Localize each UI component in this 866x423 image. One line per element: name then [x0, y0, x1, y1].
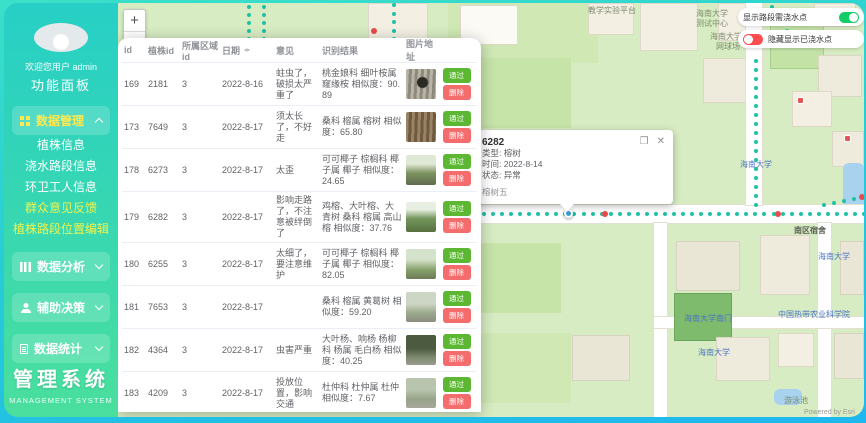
sidebar-item-link[interactable]: 环卫工人信息: [25, 177, 97, 198]
sidebar-item-link[interactable]: 浇水路段信息: [25, 156, 97, 177]
sidebar-item-active[interactable]: 群众意见反馈: [25, 198, 97, 219]
watering-point: [645, 212, 649, 216]
plant-photo-thumbnail[interactable]: [406, 378, 436, 408]
cell-plant-id: 7649: [146, 122, 180, 133]
map-label: 海南大学: [740, 159, 772, 170]
cell-id: 183: [122, 388, 146, 399]
table-row: 180 6255 3 2022-8-17 太细了，要注意维护 可可椰子 棕榈科 …: [122, 243, 477, 286]
cell-plant-id: 6255: [146, 259, 180, 270]
cell-plant-id: 6273: [146, 165, 180, 176]
toggle-switch-on[interactable]: [839, 12, 859, 23]
watering-point: [754, 131, 758, 135]
table-header-row: id植株id所属区域id日期意见识别结果图片地址: [122, 38, 477, 63]
delete-button[interactable]: 删除: [443, 265, 471, 280]
cell-plant-id: 4364: [146, 345, 180, 356]
watering-point: [262, 21, 266, 25]
delete-button[interactable]: 删除: [443, 351, 471, 366]
watering-point: [754, 149, 758, 153]
watering-point: [832, 201, 836, 205]
watering-point: [247, 5, 251, 9]
watering-point: [247, 29, 251, 33]
column-header: 所属区域id: [180, 39, 220, 62]
alert-point[interactable]: [775, 211, 781, 217]
delete-button[interactable]: 删除: [443, 85, 471, 100]
cell-opinion: 太歪: [274, 165, 320, 176]
watering-point: [262, 13, 266, 17]
map-label: 游泳池: [784, 395, 808, 406]
map-label: 网球场: [716, 41, 740, 52]
cell-plant-id: 4209: [146, 388, 180, 399]
cell-result: 桃金娘科 细叶桉属 窿缘桉 相似度：90.89: [320, 68, 404, 101]
cell-date: 2022-8-16: [220, 79, 274, 90]
watering-point: [392, 29, 396, 33]
watering-point: [609, 212, 613, 216]
menu-group-label: 辅助决策: [37, 299, 85, 316]
toggle-row-show-points: 显示路段需浇水点: [738, 8, 864, 26]
menu-group-label: 数据管理: [36, 112, 84, 129]
layer-toggle-panel: 显示路段需浇水点 隐藏显示已浇水点: [738, 8, 864, 48]
chevron-up-icon: [95, 118, 103, 126]
popup-time: 时间: 2022-8-14: [482, 159, 663, 170]
watering-point: [754, 185, 758, 189]
cell-area-id: 3: [180, 212, 220, 223]
approve-button[interactable]: 通过: [443, 201, 471, 216]
approve-button[interactable]: 通过: [443, 377, 471, 392]
cell-date: 2022-8-17: [220, 259, 274, 270]
column-header: 意见: [274, 44, 320, 57]
poi-marker-red[interactable]: [844, 135, 851, 142]
menu-group-label: 数据统计: [34, 340, 82, 357]
watering-point: [808, 212, 812, 216]
chevron-down-icon: [95, 261, 103, 269]
bar-chart-icon: [20, 262, 31, 272]
watering-point: [392, 12, 396, 16]
document-icon: [20, 344, 28, 354]
watering-point: [799, 212, 803, 216]
delete-button[interactable]: 删除: [443, 171, 471, 186]
cell-id: 182: [122, 345, 146, 356]
watering-point: [247, 21, 251, 25]
map-label: 南区宿舍: [794, 225, 826, 236]
watering-point: [591, 212, 595, 216]
cell-result: 桑科 榕属 黄葛树 相似度：59.20: [320, 296, 404, 318]
watering-point: [842, 199, 846, 203]
watering-point: [663, 212, 667, 216]
chevron-down-icon: [95, 343, 103, 351]
watering-point: [862, 212, 864, 216]
cell-date: 2022-8-17: [220, 345, 274, 356]
watering-point: [853, 212, 857, 216]
sidebar-item-link[interactable]: 植株信息: [37, 135, 85, 156]
maximize-icon[interactable]: ❐: [640, 136, 649, 147]
delete-button[interactable]: 删除: [443, 128, 471, 143]
approve-button[interactable]: 通过: [443, 248, 471, 263]
watering-point: [754, 68, 758, 72]
watering-point: [636, 212, 640, 216]
watering-point: [754, 104, 758, 108]
column-header: 植株id: [146, 44, 180, 57]
watering-point: [392, 20, 396, 24]
popup-type: 类型: 榕树: [482, 148, 663, 159]
cell-area-id: 3: [180, 122, 220, 133]
cell-date: 2022-8-17: [220, 388, 274, 399]
watering-point: [672, 212, 676, 216]
watering-point: [781, 212, 785, 216]
watering-point: [582, 212, 586, 216]
watering-point: [844, 212, 848, 216]
watering-point: [482, 212, 486, 216]
plant-photo-thumbnail[interactable]: [406, 335, 436, 365]
watering-point: [817, 212, 821, 216]
map-label: 中国热带农业科学院: [778, 309, 850, 320]
cell-area-id: 3: [180, 345, 220, 356]
menu-group[interactable]: 辅助决策: [12, 293, 110, 322]
cell-area-id: 3: [180, 388, 220, 399]
toggle-label: 显示路段需浇水点: [743, 12, 807, 23]
table-body: 169 2181 3 2022-8-16 蛀虫了，破损太严重了 桃金娘科 细叶桉…: [122, 63, 477, 412]
watering-point: [754, 95, 758, 99]
plant-photo-thumbnail[interactable]: [406, 155, 436, 185]
cell-opinion: 太细了，要注意维护: [274, 248, 320, 281]
cell-plant-id: 6282: [146, 212, 180, 223]
cell-result: 杜仲科 杜仲属 杜仲 相似度：7.67: [320, 382, 404, 404]
plant-photo-thumbnail[interactable]: [406, 292, 436, 322]
brand: 管理系统 MANAGEMENT SYSTEM: [9, 363, 113, 405]
brand-subtitle: MANAGEMENT SYSTEM: [9, 396, 113, 405]
cell-result: 鸡榕、大叶榕、大青树 桑科 榕属 高山榕 相似度：37.76: [320, 201, 404, 234]
poi-marker-red[interactable]: [797, 97, 804, 104]
watering-point: [826, 212, 830, 216]
cell-date: 2022-8-17: [220, 212, 274, 223]
watering-point: [852, 197, 856, 201]
cell-area-id: 3: [180, 302, 220, 313]
sidebar: 欢迎您用户 admin 功能面板 数据管理 植株信息浇水路段信息环卫工人信息群众…: [4, 3, 118, 417]
cell-plant-id: 7653: [146, 302, 180, 313]
alert-point[interactable]: [371, 28, 377, 34]
watering-point: [262, 5, 266, 9]
cell-date: 2022-8-17: [220, 165, 274, 176]
column-header: 识别结果: [320, 44, 404, 57]
popup-status: 状态: 异常: [482, 170, 663, 181]
cell-date: 2022-8-17: [220, 302, 274, 313]
watering-point: [754, 77, 758, 81]
cell-result: 可可椰子 棕榈科 椰子属 椰子 相似度：24.65: [320, 154, 404, 187]
column-header[interactable]: 日期: [220, 44, 274, 57]
person-icon: [20, 303, 31, 313]
cell-area-id: 3: [180, 165, 220, 176]
plant-info-popup: ❐ ✕ 6282 类型: 榕树 时间: 2022-8-14 状态: 异常 榕树五: [470, 130, 673, 204]
watering-point: [392, 3, 396, 7]
watering-point: [754, 59, 758, 63]
watering-point: [754, 194, 758, 198]
cell-date: 2022-8-17: [220, 122, 274, 133]
watering-point: [822, 203, 826, 207]
panel-title: 功能面板: [31, 75, 91, 94]
chevron-down-icon: [95, 302, 103, 310]
watering-point: [654, 212, 658, 216]
delete-button[interactable]: 删除: [443, 394, 471, 409]
watering-point: [835, 212, 839, 216]
cell-result: 可可椰子 棕榈科 椰子属 椰子 相似度：82.05: [320, 248, 404, 281]
plant-photo-thumbnail[interactable]: [406, 112, 436, 142]
delete-button[interactable]: 删除: [443, 308, 471, 323]
map-label: 教学实验平台: [588, 5, 636, 16]
popup-footer: 榕树五: [482, 186, 663, 198]
watering-point: [247, 13, 251, 17]
map-label: 海南大学南门: [684, 313, 732, 324]
cell-opinion: 影响走路了，不注意被绊倒了: [274, 195, 320, 239]
menu-group-data-management[interactable]: 数据管理: [12, 106, 110, 135]
map-attribution: Powered by Esri: [804, 409, 855, 416]
approve-button[interactable]: 通过: [443, 111, 471, 126]
approve-button[interactable]: 通过: [443, 334, 471, 349]
watering-point: [754, 113, 758, 117]
plant-photo-thumbnail[interactable]: [406, 69, 436, 99]
map-label: 海南大学: [818, 251, 850, 262]
cell-id: 181: [122, 302, 146, 313]
cell-opinion: 蛀虫了，破损太严重了: [274, 68, 320, 101]
watering-point: [754, 140, 758, 144]
table-row: 183 4209 3 2022-8-17 投放位置，影响交通 杜仲科 杜仲属 杜…: [122, 372, 477, 412]
close-icon[interactable]: ✕: [657, 136, 665, 147]
watering-point: [754, 122, 758, 126]
watering-point: [790, 212, 794, 216]
feedback-table-panel: id植株id所属区域id日期意见识别结果图片地址 169 2181 3 2022…: [118, 38, 481, 412]
sort-caret-icon[interactable]: [243, 45, 251, 55]
approve-button[interactable]: 通过: [443, 154, 471, 169]
toggle-switch-off[interactable]: [743, 34, 763, 45]
cell-result: 大叶杨、响杨 杨柳科 杨属 毛白杨 相似度：40.25: [320, 334, 404, 367]
cell-id: 169: [122, 79, 146, 90]
menu-group-label: 数据分析: [37, 258, 85, 275]
cell-opinion: 须太长了，不好走: [274, 111, 320, 144]
plant-photo-thumbnail[interactable]: [406, 202, 436, 232]
sidebar-collapsed-groups: 数据分析辅助决策数据统计: [4, 240, 118, 363]
approve-button[interactable]: 通过: [443, 68, 471, 83]
watering-point: [262, 29, 266, 33]
toggle-row-hide-points: 隐藏显示已浇水点: [738, 30, 864, 48]
cell-opinion: 投放位置，影响交通: [274, 377, 320, 410]
popup-plant-id: 6282: [482, 137, 663, 148]
watering-point: [754, 86, 758, 90]
cell-area-id: 3: [180, 79, 220, 90]
cell-result: 桑科 榕属 榕树 相似度：65.80: [320, 116, 404, 138]
watering-point: [754, 176, 758, 180]
cell-area-id: 3: [180, 259, 220, 270]
cell-opinion: 虫害严重: [274, 345, 320, 356]
table-row: 179 6282 3 2022-8-17 影响走路了，不注意被绊倒了 鸡榕、大叶…: [122, 192, 477, 243]
map-label: 测试中心: [696, 18, 728, 29]
cell-id: 179: [122, 212, 146, 223]
sidebar-submenu: 植株信息浇水路段信息环卫工人信息群众意见反馈植株路段位置编辑: [4, 135, 118, 240]
cell-plant-id: 2181: [146, 79, 180, 90]
page-frame: 欢迎您用户 admin 功能面板 数据管理 植株信息浇水路段信息环卫工人信息群众…: [0, 0, 866, 423]
user-avatar: [34, 23, 88, 52]
table-row: 181 7653 3 2022-8-17 桑科 榕属 黄葛树 相似度：59.20…: [122, 286, 477, 329]
table-row: 178 6273 3 2022-8-17 太歪 可可椰子 棕榈科 椰子属 椰子 …: [122, 149, 477, 192]
watering-point: [618, 212, 622, 216]
watering-point: [627, 212, 631, 216]
table-row: 182 4364 3 2022-8-17 虫害严重 大叶杨、响杨 杨柳科 杨属 …: [122, 329, 477, 372]
cell-id: 173: [122, 122, 146, 133]
column-header: id: [122, 45, 146, 55]
brand-title: 管理系统: [9, 363, 113, 392]
sidebar-item-active[interactable]: 植株路段位置编辑: [13, 219, 109, 240]
cell-id: 178: [122, 165, 146, 176]
map-canvas[interactable]: 教学实验平台海南大学测试中心海南大学网球场南区宿舍海南大学海南大学海南大学南门中…: [118, 3, 864, 417]
menu-group[interactable]: 数据统计: [12, 334, 110, 363]
map-label: 海南大学: [698, 347, 730, 358]
plant-photo-thumbnail[interactable]: [406, 249, 436, 279]
delete-button[interactable]: 删除: [443, 218, 471, 233]
watering-point: [754, 203, 758, 207]
column-header: 图片地址: [404, 38, 436, 63]
zoom-in-button[interactable]: +: [124, 10, 145, 32]
cell-id: 180: [122, 259, 146, 270]
alert-point[interactable]: [859, 194, 864, 200]
approve-button[interactable]: 通过: [443, 291, 471, 306]
grid-icon: [20, 116, 24, 120]
toggle-label: 隐藏显示已浇水点: [768, 34, 832, 45]
welcome-text: 欢迎您用户 admin: [25, 60, 97, 73]
table-row: 169 2181 3 2022-8-16 蛀虫了，破损太严重了 桃金娘科 细叶桉…: [122, 63, 477, 106]
table-row: 173 7649 3 2022-8-17 须太长了，不好走 桑科 榕属 榕树 相…: [122, 106, 477, 149]
menu-group[interactable]: 数据分析: [12, 252, 110, 281]
alert-point[interactable]: [602, 211, 608, 217]
